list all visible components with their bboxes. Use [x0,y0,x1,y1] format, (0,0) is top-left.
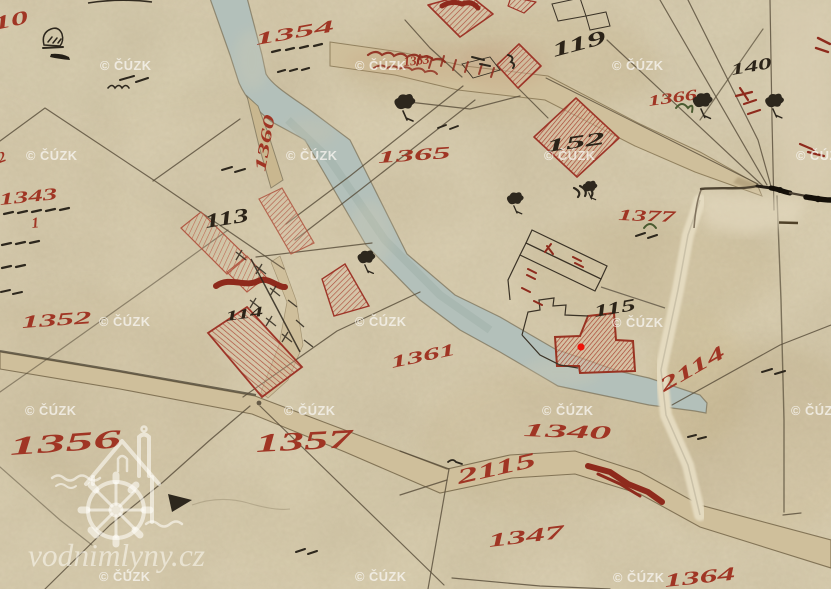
svg-text:vodnimlyny.cz: vodnimlyny.cz [28,537,206,573]
svg-text:© ČÚZK: © ČÚZK [286,148,338,163]
svg-text:© ČÚZK: © ČÚZK [612,315,664,330]
svg-text:© ČÚZK: © ČÚZK [355,314,407,329]
svg-text:© ČÚZK: © ČÚZK [99,314,151,329]
svg-text:© ČÚZK: © ČÚZK [612,58,664,73]
svg-text:© ČÚZK: © ČÚZK [100,58,152,73]
svg-text:© ČÚZK: © ČÚZK [613,570,665,585]
svg-text:© ČÚZK: © ČÚZK [26,148,78,163]
svg-text:© ČÚZK: © ČÚZK [355,569,407,584]
svg-text:© ČÚZK: © ČÚZK [542,403,594,418]
svg-text:© ČÚZK: © ČÚZK [25,403,77,418]
svg-text:© ČÚZK: © ČÚZK [791,403,831,418]
svg-text:© ČÚZK: © ČÚZK [284,403,336,418]
svg-text:© ČÚZK: © ČÚZK [796,148,831,163]
svg-text:© ČÚZK: © ČÚZK [544,148,596,163]
svg-text:1340: 1340 [523,420,613,444]
svg-text:1377: 1377 [618,207,677,226]
svg-text:© ČÚZK: © ČÚZK [355,58,407,73]
svg-text:1357: 1357 [255,424,355,458]
